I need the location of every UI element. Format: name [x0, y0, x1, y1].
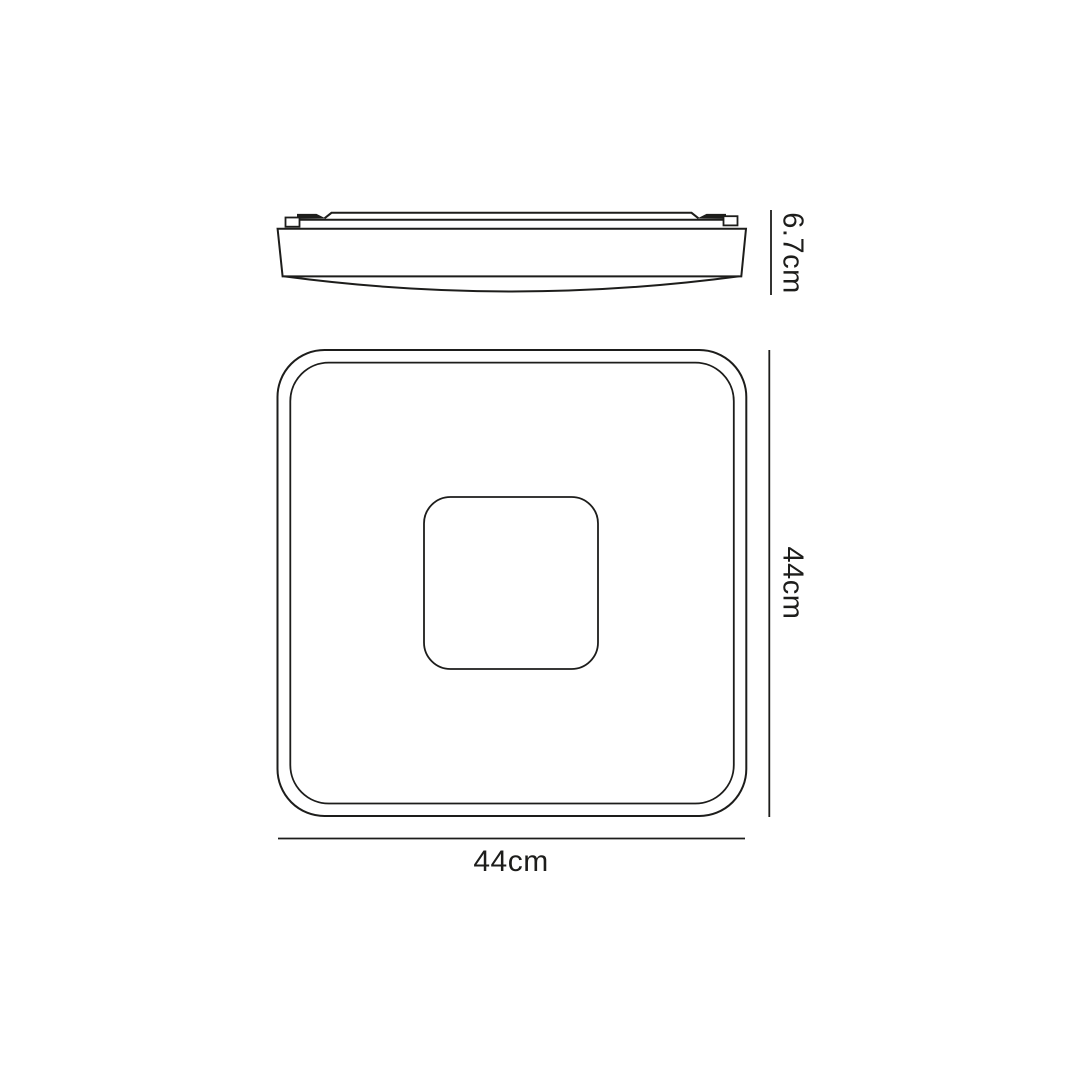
right-clip-bracket [724, 216, 738, 225]
front-width-label: 44cm [473, 847, 548, 877]
diffuser-lens [285, 276, 739, 291]
front-height-label: 44cm [778, 547, 807, 620]
front-view-drawing [278, 350, 747, 816]
center-panel [424, 497, 598, 669]
line-art [0, 0, 1080, 1080]
lamp-body [278, 229, 746, 277]
mount-plate-top-edge [325, 213, 699, 219]
outer-frame [278, 350, 747, 816]
diagram-canvas: 6.7cm 44cm 44cm [0, 0, 1080, 1080]
right-spring-clip [698, 214, 727, 219]
dimension-lines [278, 210, 771, 839]
side-height-label: 6.7cm [777, 212, 806, 293]
side-view-drawing [278, 213, 746, 292]
left-spring-clip [297, 214, 326, 219]
left-clip-bracket [286, 218, 300, 227]
inner-frame [290, 363, 734, 804]
